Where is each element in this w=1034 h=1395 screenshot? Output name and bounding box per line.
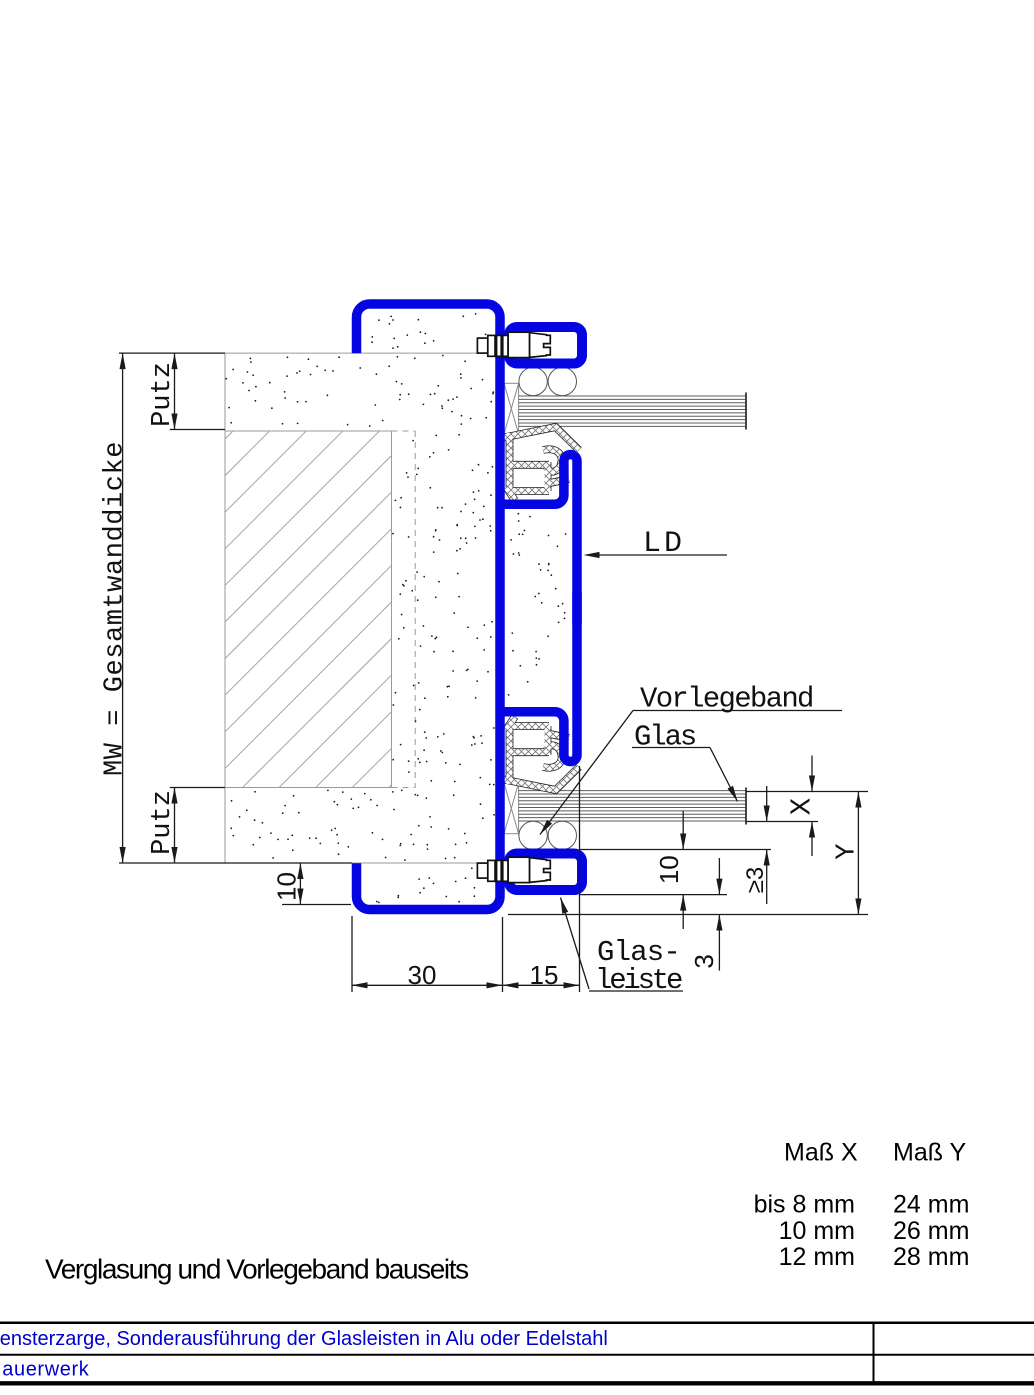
svg-text:bis 8 mm: bis 8 mm — [754, 1191, 855, 1219]
svg-text:Maß X: Maß X — [784, 1139, 858, 1167]
svg-text:26 mm: 26 mm — [893, 1217, 969, 1245]
svg-text:Mauerwerk: Mauerwerk — [0, 1359, 90, 1381]
svg-text:Verglasung und Vorlegeband bau: Verglasung und Vorlegeband bauseits — [45, 1254, 468, 1285]
svg-text:leiste: leiste — [595, 964, 682, 997]
svg-text:30: 30 — [408, 960, 437, 990]
svg-text:Putz: Putz — [148, 362, 178, 427]
svg-text:X: X — [786, 798, 819, 815]
svg-text:Putz: Putz — [148, 790, 178, 855]
svg-text:Fensterzarge, Sonderausführung: Fensterzarge, Sonderausführung der Glasl… — [0, 1328, 608, 1350]
svg-text:10: 10 — [654, 855, 684, 884]
svg-text:10: 10 — [272, 872, 302, 901]
svg-text:28 mm: 28 mm — [893, 1243, 969, 1271]
svg-text:15: 15 — [530, 960, 559, 990]
svg-text:Glas: Glas — [634, 721, 696, 754]
svg-text:Y: Y — [833, 844, 863, 860]
svg-text:10 mm: 10 mm — [779, 1217, 855, 1245]
svg-text:Maß Y: Maß Y — [893, 1139, 966, 1167]
svg-text:LD: LD — [643, 527, 685, 561]
svg-text:MW = Gesamtwanddicke: MW = Gesamtwanddicke — [101, 441, 131, 776]
svg-text:≥3: ≥3 — [742, 867, 769, 894]
svg-text:Vorlegeband: Vorlegeband — [640, 683, 813, 716]
svg-text:3: 3 — [689, 954, 719, 968]
svg-text:12 mm: 12 mm — [779, 1243, 855, 1271]
svg-text:24 mm: 24 mm — [893, 1191, 969, 1219]
